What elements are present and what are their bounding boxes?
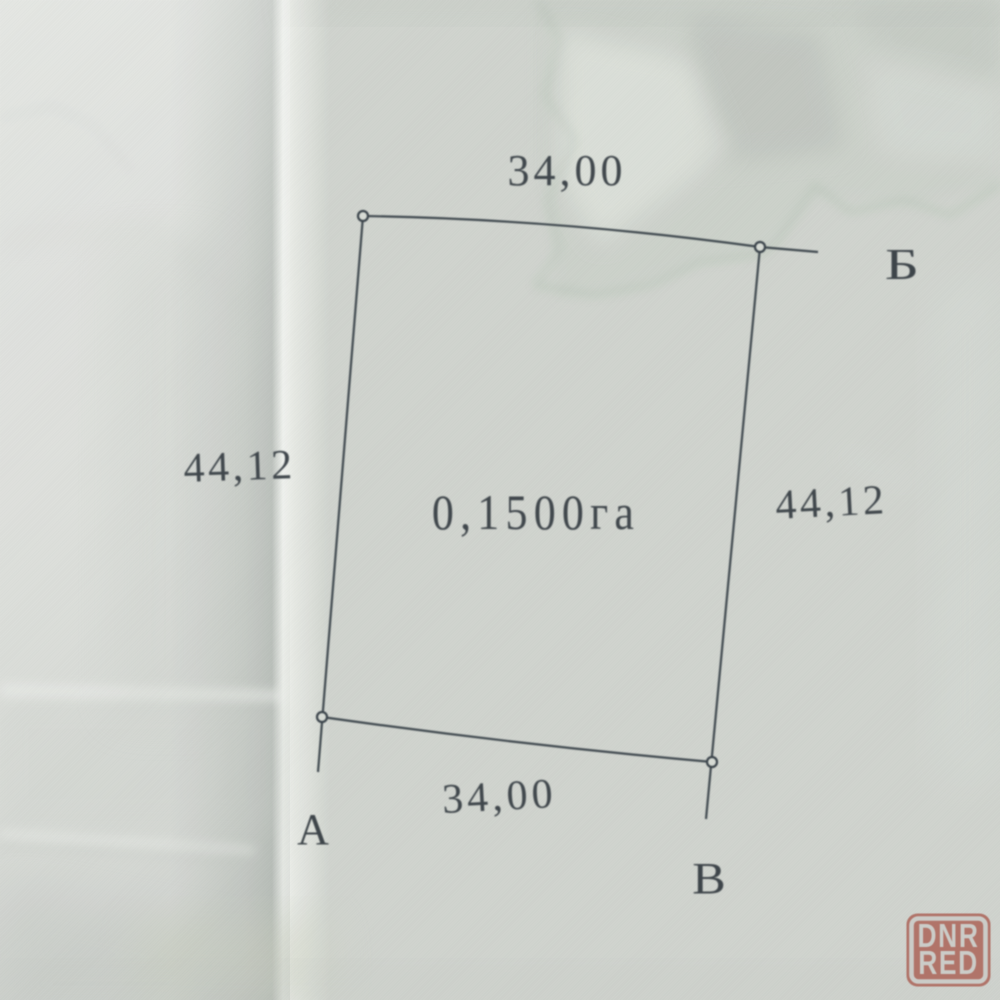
svg-text:34,00: 34,00 (508, 146, 627, 195)
svg-text:44,12: 44,12 (774, 477, 888, 529)
svg-text:44,12: 44,12 (183, 442, 297, 492)
svg-text:0,1500га: 0,1500га (432, 486, 640, 541)
svg-text:Б: Б (885, 240, 919, 289)
svg-text:А: А (297, 805, 329, 854)
svg-text:В: В (692, 855, 725, 903)
svg-text:RED: RED (918, 945, 979, 981)
svg-text:34,00: 34,00 (441, 771, 558, 823)
